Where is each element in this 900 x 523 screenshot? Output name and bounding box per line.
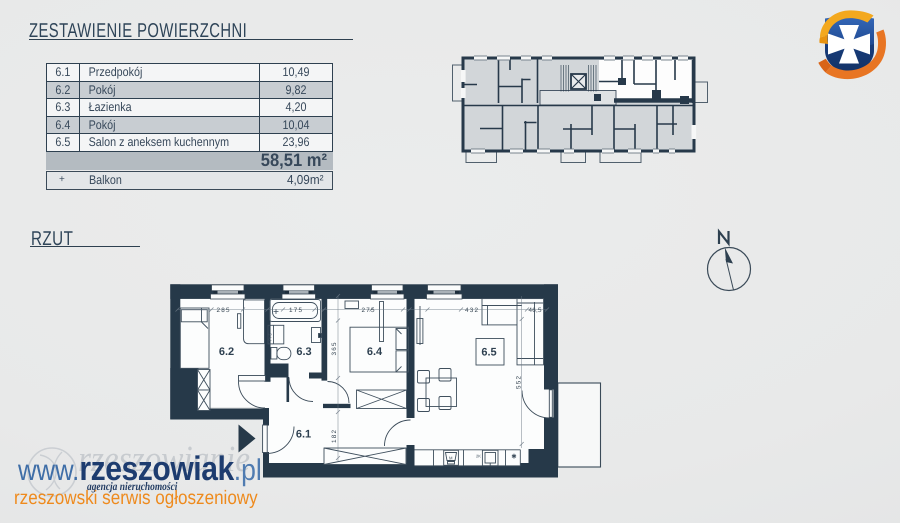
- svg-text:175: 175: [289, 307, 302, 314]
- svg-text:6.3: 6.3: [296, 346, 311, 358]
- svg-text:365: 365: [331, 342, 338, 355]
- svg-text:552: 552: [516, 376, 523, 389]
- svg-text:6.5: 6.5: [481, 347, 496, 359]
- svg-text:275: 275: [362, 307, 375, 314]
- svg-text:432: 432: [465, 307, 478, 314]
- svg-text:✱: ✱: [511, 454, 517, 461]
- svg-text:2K: 2K: [476, 454, 481, 459]
- svg-text:6.1: 6.1: [296, 429, 311, 441]
- svg-text:6.2: 6.2: [219, 346, 234, 358]
- svg-text:Pr-5: Pr-5: [268, 332, 273, 340]
- svg-text:M: M: [449, 456, 453, 461]
- svg-text:285: 285: [217, 307, 230, 314]
- svg-text:46,5: 46,5: [529, 307, 542, 314]
- svg-text:6.4: 6.4: [367, 346, 383, 358]
- svg-text:182: 182: [331, 430, 338, 443]
